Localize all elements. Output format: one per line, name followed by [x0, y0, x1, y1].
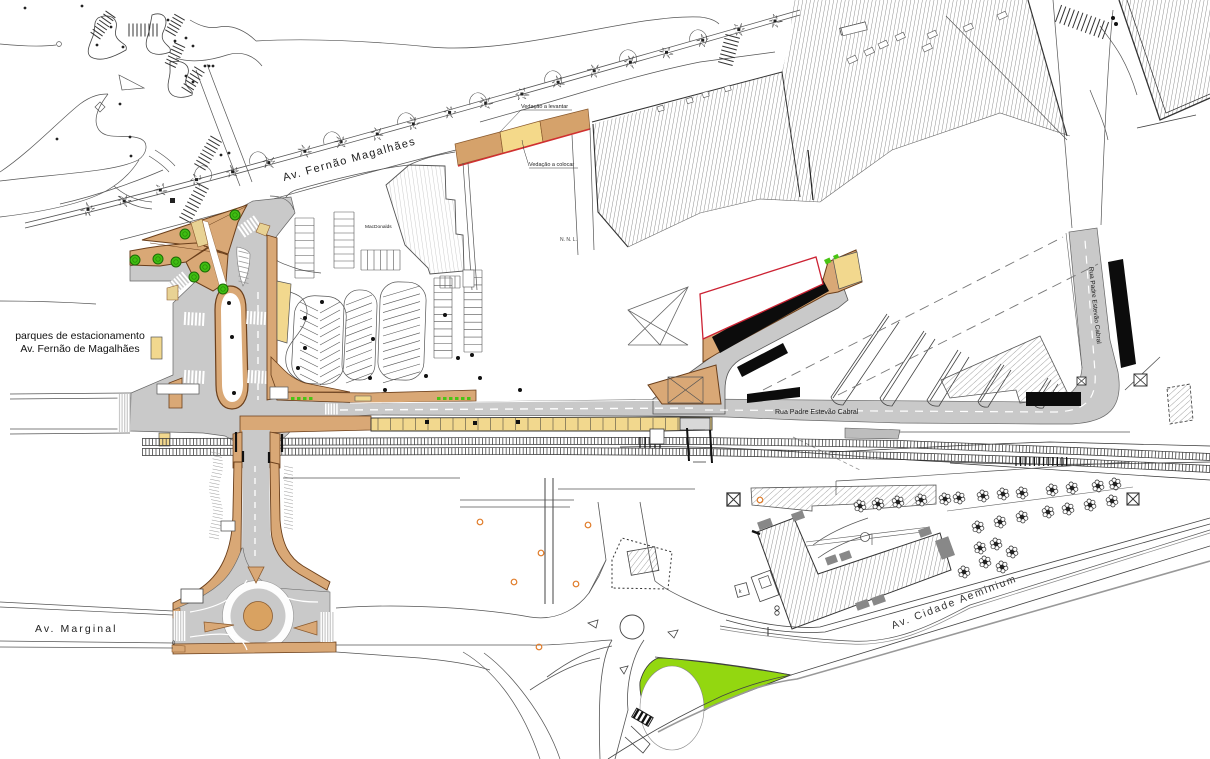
svg-text:Rua Padre Estevão Cabral: Rua Padre Estevão Cabral [775, 409, 859, 416]
svg-text:Av. Marginal: Av. Marginal [35, 623, 118, 635]
svg-text:parques de estacionamento: parques de estacionamento [15, 330, 145, 342]
svg-text:N. N. L.: N. N. L. [560, 237, 577, 243]
svg-text:Vedação a levantar: Vedação a levantar [521, 104, 568, 110]
svg-text:Av. Fernão de Magalhães: Av. Fernão de Magalhães [20, 343, 139, 355]
svg-text:MacDonalds: MacDonalds [365, 224, 392, 230]
svg-text:Vedação a colocar: Vedação a colocar [529, 162, 574, 168]
